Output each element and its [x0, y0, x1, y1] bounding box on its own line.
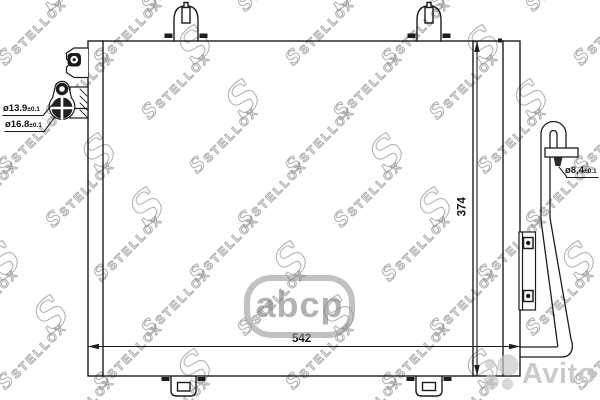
pipe-port-nub — [554, 157, 563, 166]
bottom-mount-tab-left — [162, 377, 206, 396]
product-image: SSTELLOXSSSTELLOXSSTELLOXSSSTELLOXSSTELL… — [0, 0, 600, 400]
dim-label-pipe-port: ø8,4±0.1 — [565, 166, 597, 176]
dim-port-small-value: ø13.9 — [3, 103, 27, 114]
avito-logo-icon — [482, 353, 520, 395]
dim-pipe-port-tolerance: ±0.1 — [584, 168, 597, 175]
pipe-flange — [545, 148, 578, 157]
fitting-eyelet-icon — [58, 85, 67, 94]
dim-label-height: 374 — [457, 194, 469, 220]
dim-label-height-wrap: 374 — [450, 194, 476, 220]
top-mount-peg-right — [408, 3, 451, 42]
avito-watermark: Avito — [482, 353, 596, 395]
abcp-watermark: abcp — [244, 275, 355, 338]
dim-port-small-tolerance: ±0.1 — [27, 106, 40, 113]
bottom-mount-tab-right — [407, 377, 452, 396]
right-side-bracket — [519, 232, 536, 310]
abcp-watermark-text: abcp — [255, 287, 343, 323]
top-edge-tick — [498, 39, 502, 43]
top-mount-peg-left — [165, 3, 208, 42]
avito-watermark-text: Avito — [522, 360, 596, 389]
dim-pipe-port-value: ø8,4 — [565, 165, 584, 176]
dim-label-port-small: ø13.9±0.1 — [3, 104, 40, 114]
dim-port-large-value: ø16.8 — [5, 119, 29, 130]
dim-label-port-large: ø16.8±0.1 — [5, 120, 42, 130]
dim-port-large-tolerance: ±0.1 — [29, 122, 42, 129]
left-top-bracket — [67, 48, 89, 78]
